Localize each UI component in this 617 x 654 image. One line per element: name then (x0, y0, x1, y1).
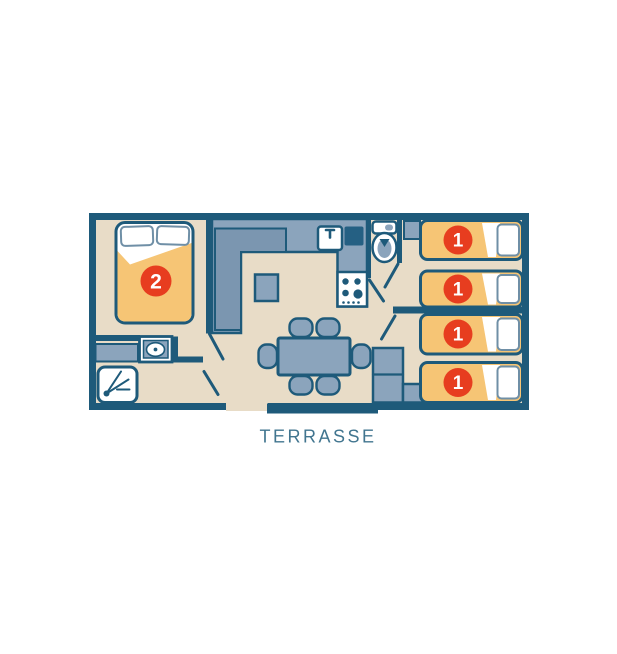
dining-chair (352, 345, 371, 369)
stove-top (338, 272, 368, 307)
dining-chair (290, 376, 313, 395)
shower (98, 367, 137, 403)
single-bed-1: 1 (421, 221, 523, 260)
stove-burner (354, 278, 360, 284)
capacity-label: 2 (150, 270, 162, 293)
dining-chair (317, 376, 340, 395)
washbasin-drain (154, 348, 158, 352)
capacity-label: 1 (453, 373, 464, 394)
floor-plan-page: 2 1 1 1 1 TERRASSE (0, 0, 617, 654)
kitchen-island (255, 275, 278, 302)
dining-chair (259, 345, 278, 369)
stove-burner (342, 278, 348, 284)
vanity-cabinet (96, 344, 139, 362)
bedroom-cabinet (404, 221, 420, 239)
stove-burner (353, 289, 362, 298)
toilet-flush-button (385, 225, 393, 231)
pillow (498, 367, 520, 399)
shower-tray (98, 367, 137, 403)
dining-table (278, 338, 350, 375)
terrace-label: TERRASSE (259, 426, 376, 446)
toilet (373, 222, 397, 263)
pillow (498, 275, 520, 303)
pillow (121, 226, 154, 246)
pillow (498, 319, 520, 351)
single-bed-3: 1 (421, 315, 523, 355)
showerroom-top-wall (92, 335, 140, 341)
showerroom-corner-wall-h (172, 357, 203, 363)
single-bed-2: 1 (421, 271, 523, 307)
single-bed-4: 1 (421, 363, 523, 403)
entrance-opening (226, 402, 268, 411)
floor-plan: 2 1 1 1 1 TERRASSE (0, 0, 617, 654)
capacity-label: 1 (453, 280, 464, 301)
stove-burner (342, 290, 349, 297)
dining-chair (290, 319, 313, 338)
washbasin (140, 337, 173, 363)
dining-chair (317, 319, 340, 338)
pillow (157, 226, 190, 245)
stove (338, 272, 368, 307)
terrace-sliding-door (267, 404, 378, 414)
pillow (498, 225, 520, 256)
double-bed: 2 (116, 223, 193, 324)
kitchen-appliance (345, 227, 364, 246)
capacity-label: 1 (453, 231, 464, 252)
capacity-label: 1 (453, 325, 464, 346)
